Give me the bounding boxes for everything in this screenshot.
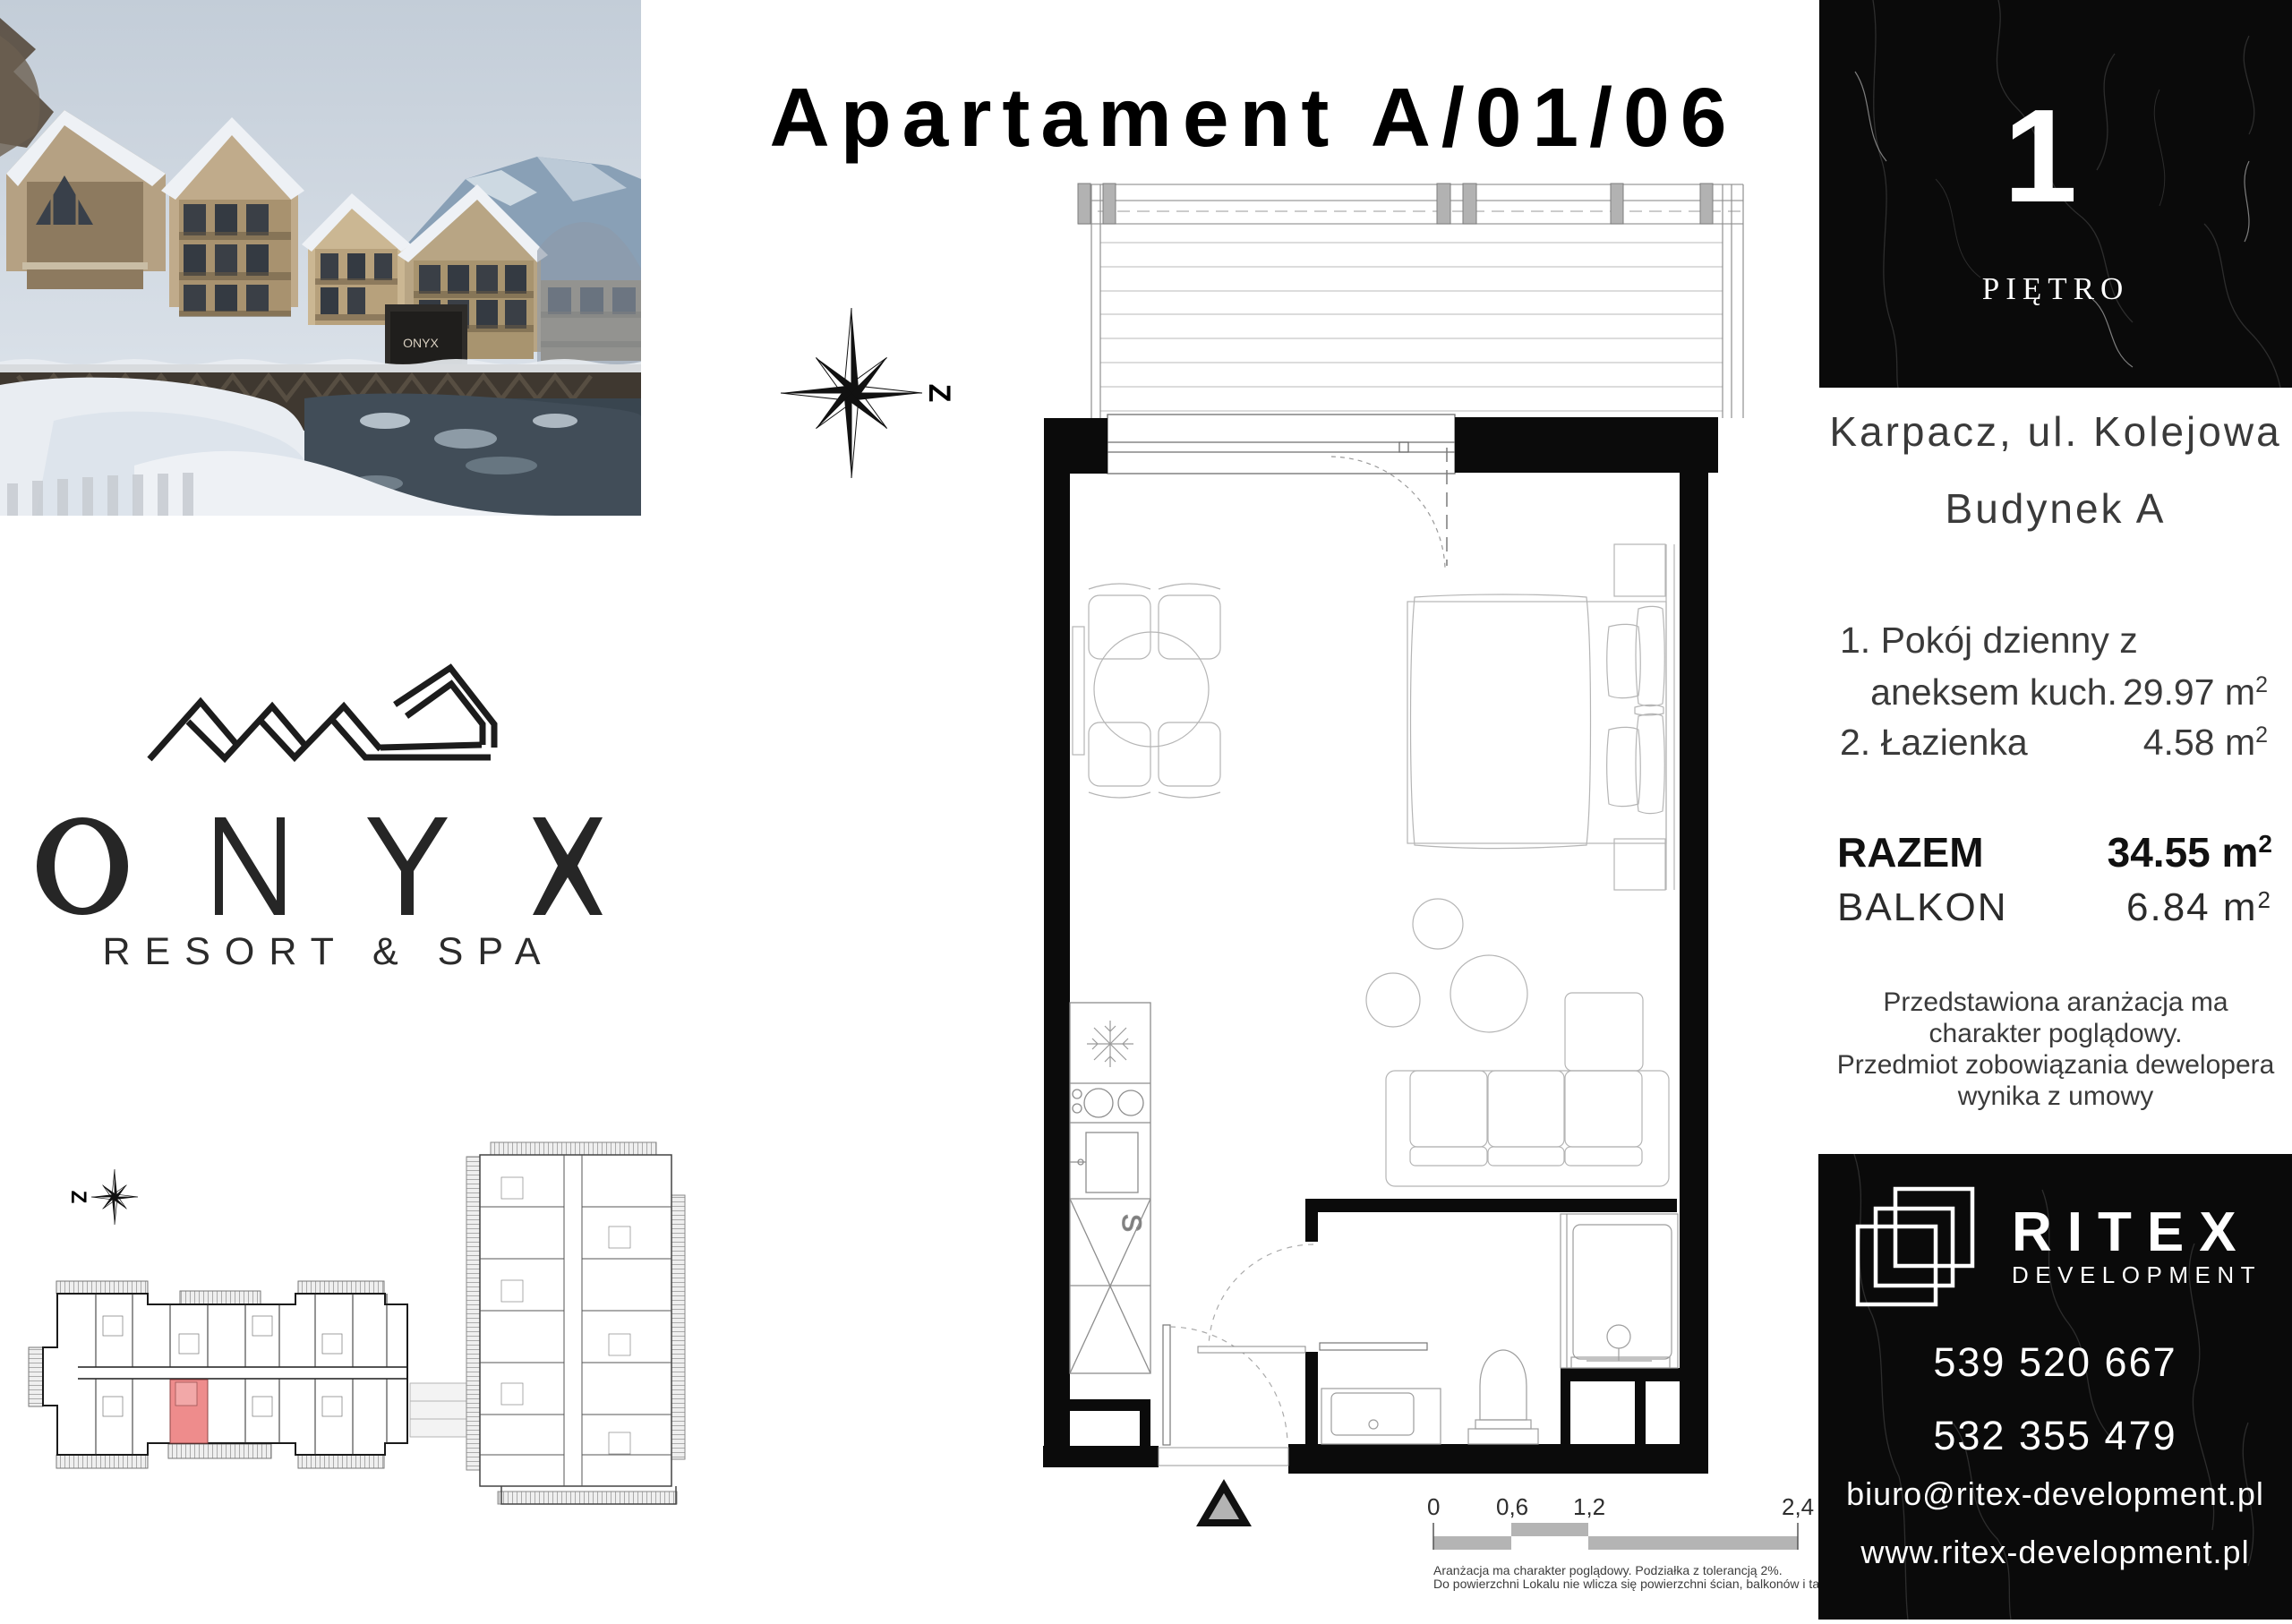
svg-text:2,4: 2,4 [1782, 1493, 1814, 1520]
svg-text:Aranżacja ma charakter poglądo: Aranżacja ma charakter poglądowy. Podzia… [1433, 1563, 1783, 1577]
svg-text:0: 0 [1427, 1493, 1440, 1520]
svg-text:0,6: 0,6 [1496, 1493, 1528, 1520]
svg-text:1,2: 1,2 [1573, 1493, 1605, 1520]
svg-text:Z: Z [66, 1191, 90, 1204]
svg-text:Z: Z [922, 384, 956, 403]
svg-text:S: S [1116, 1214, 1146, 1232]
svg-text:Do powierzchni Lokalu nie wlic: Do powierzchni Lokalu nie wlicza się pow… [1433, 1577, 1856, 1591]
